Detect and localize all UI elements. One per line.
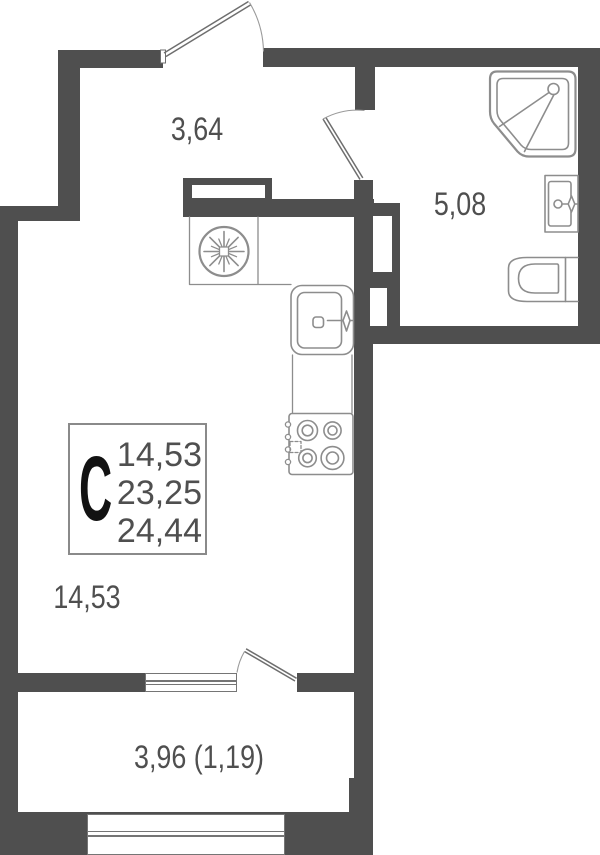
living-area-label: 14,53 (37, 579, 138, 615)
entrance-door (161, 2, 264, 64)
unit-area-line: 24,44 (111, 512, 202, 550)
balcony-partition-window (145, 673, 237, 692)
kitchen-sink-icon (291, 286, 354, 355)
window-pane-line (87, 831, 285, 833)
door-leaf (245, 649, 297, 681)
unit-info-box: С 14,53 23,25 24,44 (68, 423, 207, 555)
door-leaf (164, 2, 251, 57)
balcony-door (237, 649, 297, 681)
wall-balcony-partition-left (0, 673, 145, 692)
kitchen-counter-lines (190, 217, 353, 413)
cooktop-icon (285, 414, 353, 475)
unit-area-list: 14,53 23,25 24,44 (111, 428, 205, 550)
door-swing-arc (237, 652, 245, 673)
wall-right-outer (578, 48, 600, 344)
door-swing-arc (250, 3, 264, 52)
window-pane-line (145, 680, 237, 682)
balcony-area-label: 3,96 (1,19) (115, 739, 283, 775)
duct-opening-upper (373, 216, 392, 272)
cabinet-slot (192, 185, 265, 198)
bathroom-door (323, 110, 365, 179)
wall-hall-left (58, 50, 80, 220)
toilet-icon (509, 258, 579, 302)
unit-area-line: 14,53 (111, 436, 202, 474)
faucet-icon (568, 196, 575, 212)
bathroom-area-label: 5,08 (410, 186, 511, 222)
door-swing-arc (323, 110, 365, 119)
unit-area-line: 23,25 (111, 474, 202, 512)
shower-cabin-icon (490, 72, 576, 157)
unit-type-letter: С (79, 447, 104, 531)
ventilation-fan-icon (200, 227, 249, 276)
faucet-icon (343, 311, 350, 331)
window-pane-line (87, 835, 285, 837)
wall-top (263, 48, 600, 67)
floor-plan: 3,64 5,08 14,53 3,96 (1,19) С 14,53 23,2… (0, 0, 600, 855)
hall-area-label: 3,64 (147, 111, 248, 147)
wall-left (0, 206, 18, 855)
wall-balcony-partition-right (297, 673, 354, 692)
washbasin-icon (545, 176, 578, 233)
door-leaf (323, 117, 363, 179)
wall-entry-stub (355, 48, 375, 110)
balcony-glazing-window (87, 814, 285, 855)
wall-kitchen-north (183, 199, 374, 217)
duct-opening-lower (370, 288, 387, 326)
window-pane-line (145, 684, 237, 686)
